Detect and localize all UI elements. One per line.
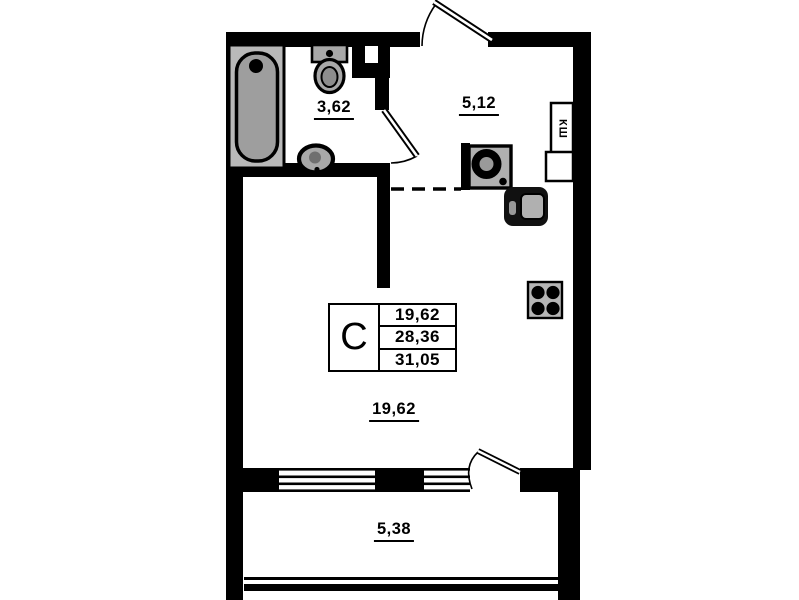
kitchen-area-label: 5,12 — [459, 94, 499, 116]
living-area-value: 19,62 — [380, 305, 455, 327]
washbasin-icon — [299, 146, 333, 173]
section-label: C — [330, 305, 380, 370]
toilet-icon — [312, 45, 347, 93]
wall-niche-box — [546, 152, 573, 181]
window-right — [424, 468, 470, 492]
balcony-area-label: 5,38 — [374, 520, 414, 542]
entrance-door — [422, 2, 492, 46]
entrance-door-arc — [422, 4, 436, 46]
window-left — [279, 468, 375, 492]
bathroom-door — [384, 110, 417, 163]
area-values: 19,62 28,36 31,05 — [380, 305, 455, 370]
wall-right-balcony — [558, 468, 580, 600]
wall-right-main — [573, 32, 591, 470]
bathtub-icon — [229, 45, 284, 168]
bathroom-door-arc — [391, 156, 417, 163]
bathroom-area-label: 3,62 — [314, 98, 354, 120]
total-area-value: 31,05 — [380, 350, 455, 370]
balcony-door-arc — [469, 452, 478, 489]
duct-shaft-label: КШ — [553, 106, 572, 151]
living-area-label: 19,62 — [369, 400, 419, 422]
floor-plan-drawing — [0, 0, 799, 600]
apartment-info-table: C 19,62 28,36 31,05 — [328, 303, 457, 372]
apartment-area-value: 28,36 — [380, 327, 455, 349]
stove-icon — [528, 282, 562, 318]
wall-window-pier-right — [520, 468, 558, 492]
wall-window-pier-mid — [375, 468, 424, 492]
wall-window-pier-left — [243, 468, 279, 492]
kitchen-sink-icon — [469, 146, 511, 188]
washer-unit-icon — [504, 187, 548, 226]
wall-bath-right — [375, 68, 389, 110]
wall-partition — [377, 163, 390, 288]
floor-plan: 3,62 5,12 19,62 5,38 КШ C 19,62 28,36 31… — [0, 0, 799, 600]
balcony-glazing — [244, 577, 558, 591]
balcony-door — [469, 451, 520, 489]
duct-inset — [365, 46, 378, 63]
interior-walls — [243, 32, 558, 492]
